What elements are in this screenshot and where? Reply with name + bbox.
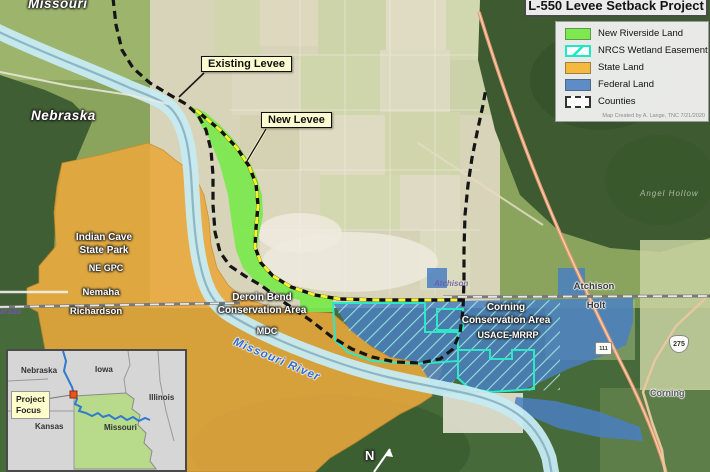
legend-row-nrcs: NRCS Wetland Easement	[556, 42, 708, 59]
indian-cave-label: Indian Cave State Park	[76, 231, 132, 257]
inset-missouri-label: Missouri	[104, 423, 137, 432]
nrcs-easement-swatch-icon	[565, 45, 591, 57]
new-levee-callout: New Levee	[261, 112, 332, 128]
new-riverside-swatch-icon	[565, 28, 591, 40]
map-credit: Map Created by A. Lange, TNC 7/21/2020	[602, 113, 705, 119]
map-canvas: Missouri Nebraska Existing Levee New Lev…	[0, 0, 710, 472]
north-arrow-label: N	[365, 448, 374, 463]
richardson-county-label: Richardson	[70, 306, 122, 317]
existing-levee-callout: Existing Levee	[201, 56, 292, 72]
inset-nebraska-label: Nebraska	[21, 366, 57, 375]
angel-hollow-label: Angel Hollow	[640, 189, 699, 198]
legend-row-state-land: State Land	[556, 59, 708, 76]
counties-swatch-icon	[565, 96, 591, 108]
legend-row-federal-land: Federal Land	[556, 76, 708, 93]
deroin-owner-label: MDC	[257, 326, 278, 336]
inset-kansas-label: Kansas	[35, 422, 63, 431]
inset-illinois-label: Illinois	[149, 393, 174, 402]
nemaha-county-label: Nemaha	[83, 287, 120, 298]
missouri-state-label: Missouri	[28, 0, 88, 11]
inset-iowa-label: Iowa	[95, 365, 113, 374]
corning-area-label: Corning Conservation Area	[462, 301, 551, 327]
deroin-bend-label: Deroin Bend Conservation Area	[218, 291, 307, 317]
route-111-shield-icon: 111	[595, 342, 612, 355]
federal-land-swatch-icon	[565, 79, 591, 91]
atchison-town-label: Atchison	[434, 279, 468, 288]
indian-cave-owner-label: NE GPC	[89, 263, 124, 273]
legend-row-counties: Counties	[556, 93, 708, 110]
map-title: L-550 Levee Setback Project	[524, 0, 708, 17]
corning-town-label: Corning	[650, 388, 685, 398]
project-focus-callout: Project Focus	[11, 391, 50, 419]
legend-row-new-riverside: New Riverside Land	[556, 25, 708, 42]
holt-county-label: Holt	[587, 300, 605, 311]
inset-locator-map: Nebraska Iowa Illinois Kansas Missouri P…	[6, 349, 187, 472]
barada-town-label: Barada	[0, 307, 21, 316]
project-marker	[70, 391, 77, 398]
legend-panel: New Riverside Land NRCS Wetland Easement…	[555, 21, 709, 122]
nebraska-state-label: Nebraska	[31, 108, 96, 123]
corning-owner-label: USACE-MRRP	[477, 330, 538, 340]
state-land-swatch-icon	[565, 62, 591, 74]
atchison-county-label: Atchison	[574, 281, 615, 292]
